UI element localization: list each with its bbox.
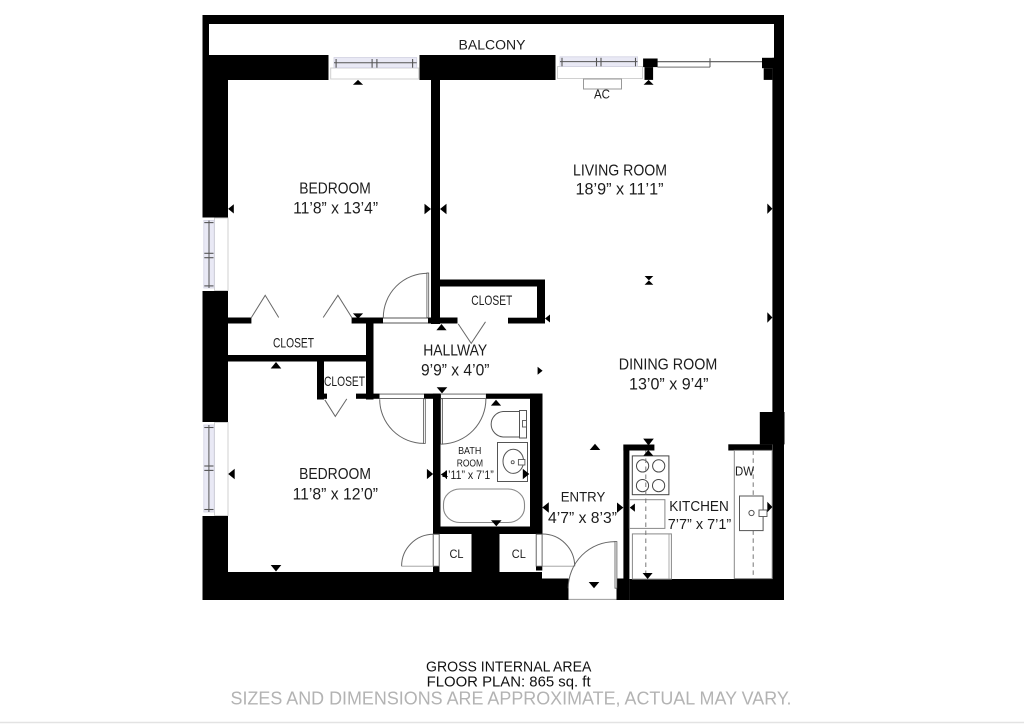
svg-text:AC: AC — [594, 88, 610, 102]
svg-text:9’9” x 4’0”: 9’9” x 4’0” — [421, 360, 490, 379]
svg-text:11’8” x 12’0”: 11’8” x 12’0” — [293, 485, 379, 504]
svg-text:7’7” x 7’1”: 7’7” x 7’1” — [668, 516, 732, 533]
svg-text:CLOSET: CLOSET — [273, 335, 314, 351]
svg-text:BEDROOM: BEDROOM — [299, 466, 371, 483]
svg-text:ENTRY: ENTRY — [561, 489, 606, 505]
svg-text:13’0” x 9’4”: 13’0” x 9’4” — [629, 374, 709, 393]
svg-text:CLOSET: CLOSET — [471, 292, 512, 308]
svg-text:DW: DW — [735, 465, 754, 479]
svg-text:CL: CL — [450, 549, 465, 561]
svg-text:SIZES AND DIMENSIONS ARE APPRO: SIZES AND DIMENSIONS ARE APPROXIMATE, AC… — [231, 688, 792, 708]
svg-text:4’7” x 8’3”: 4’7” x 8’3” — [548, 510, 617, 527]
svg-text:KITCHEN: KITCHEN — [669, 498, 729, 515]
svg-text:11’8” x 13’4”: 11’8” x 13’4” — [293, 198, 378, 217]
svg-text:ROOM: ROOM — [457, 457, 483, 469]
svg-text:BEDROOM: BEDROOM — [299, 181, 371, 198]
svg-text:4’11” x 7’1”: 4’11” x 7’1” — [442, 470, 494, 482]
svg-text:DINING ROOM: DINING ROOM — [619, 356, 718, 373]
svg-text:CLOSET: CLOSET — [324, 373, 365, 389]
svg-text:HALLWAY: HALLWAY — [423, 343, 487, 360]
svg-text:LIVING ROOM: LIVING ROOM — [573, 163, 667, 180]
svg-text:18’9” x 11’1”: 18’9” x 11’1” — [576, 180, 664, 199]
svg-text:BALCONY: BALCONY — [459, 38, 527, 54]
svg-text:CL: CL — [512, 549, 527, 561]
svg-text:BATH: BATH — [458, 445, 481, 457]
